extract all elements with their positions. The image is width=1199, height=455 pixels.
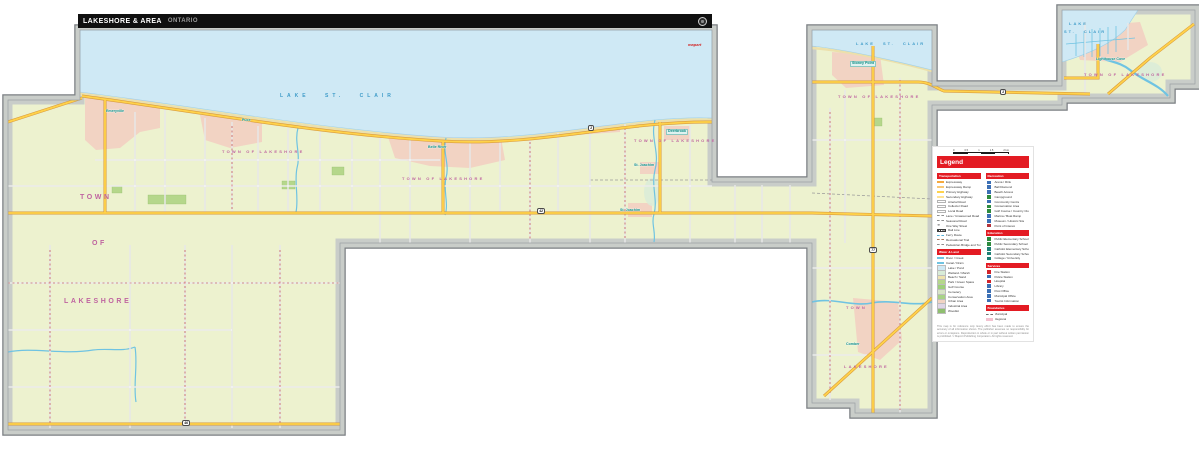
legend-swatch-sym <box>987 200 991 204</box>
legend-item-label: Lane / Unassumed Road <box>946 214 979 218</box>
legend-swatch-sym <box>987 237 991 241</box>
legend-swatch-sym <box>987 209 991 213</box>
legend-swatch-sym <box>987 275 991 279</box>
legend-item-label: Beach / Sand <box>948 275 966 279</box>
legend-item: College / University <box>986 256 1030 261</box>
legend-footnote: This map is for reference only. Every ef… <box>937 325 1029 338</box>
legend-item-label: One Way Street <box>946 224 967 228</box>
legend-item: Tourist Information <box>986 298 1030 303</box>
legend-item-label: Urban Area <box>948 299 963 303</box>
map-region: ONTARIO <box>168 18 198 24</box>
legend-item-label: Point of Interest <box>994 224 1015 228</box>
legend-item-label: Catholic Secondary School <box>994 252 1029 256</box>
legend-swatch-dash-brown <box>937 239 944 240</box>
legend-title: Legend <box>937 156 1029 168</box>
legend-item-label: Public Elementary School <box>994 237 1028 241</box>
legend-item-label: Community Centre <box>994 200 1019 204</box>
legend-item-label: Secondary Highway <box>946 195 973 199</box>
legend-item-label: Conservation Area <box>948 295 973 299</box>
legend-section-header: Boundaries <box>986 305 1030 311</box>
legend-swatch-line <box>937 196 944 198</box>
scale-tick: 0 <box>953 149 954 152</box>
legend-swatch-sym <box>987 284 991 288</box>
legend-item: Pedestrian Bridge and Tunnel <box>937 242 981 247</box>
legend-item-label: Tourist Information <box>994 299 1019 303</box>
legend-swatch-sym <box>987 190 991 194</box>
legend-item-label: Post Office <box>994 289 1009 293</box>
legend-section-header: Transportation <box>937 173 981 179</box>
legend-swatch-sym <box>987 205 991 209</box>
legend-swatch-sym <box>987 252 991 256</box>
legend-swatch-line-outline <box>937 200 946 203</box>
legend-item-label: Arena / Rink <box>994 180 1011 184</box>
legend-swatch-dash-gray <box>937 244 944 245</box>
legend-swatch-line <box>937 186 944 188</box>
legend-swatch-dash-blue <box>937 235 944 236</box>
legend-item-label: Industrial Area <box>948 304 967 308</box>
legend-item-label: Primary Highway <box>946 190 969 194</box>
legend-item-label: Regional <box>995 317 1007 321</box>
scale-tick: 1.5 <box>990 149 994 152</box>
legend-item-label: Ball Diamond <box>994 185 1012 189</box>
legend-swatch-line-outline <box>937 205 946 208</box>
scale-tick: 0.5 <box>965 149 969 152</box>
legend-swatch-arrow: ➜ <box>937 224 944 227</box>
legend-section-header: Water & Land <box>937 249 981 255</box>
scale-bar-segments <box>953 152 1009 154</box>
legend-swatch-sym <box>987 299 991 303</box>
legend-item-label: College / University <box>994 256 1020 260</box>
legend-item-label: Park / Green Space <box>948 280 974 284</box>
scale-tick: 2 km <box>1003 149 1009 152</box>
legend-swatch-sym <box>987 224 991 228</box>
legend-item-label: Conservation Area <box>994 204 1019 208</box>
legend-item-label: Municipal <box>995 312 1008 316</box>
legend-item-label: Wetland / Marsh <box>948 271 970 275</box>
legend-item: Regional <box>986 317 1030 322</box>
title-bar: LAKESHORE & AREA ONTARIO <box>78 14 712 28</box>
legend-item-label: Canal / Drain <box>946 261 964 265</box>
legend-item-label: Cemetery <box>948 290 961 294</box>
legend-item-label: Rail Line <box>948 228 960 232</box>
legend-swatch-sym <box>987 219 991 223</box>
legend-section-header: Services <box>986 263 1030 269</box>
legend-panel: 00.511.52 km Legend TransportationExpres… <box>932 146 1034 342</box>
legend-item-label: Municipal Office <box>994 294 1015 298</box>
legend-swatch-sym <box>987 247 991 251</box>
legend-item-label: Seasonal Road <box>946 219 967 223</box>
legend-item-label: Recreational Trail <box>946 238 969 242</box>
legend-item-label: Golf Course <box>948 285 964 289</box>
legend-swatch-sym <box>987 294 991 298</box>
legend-swatch-line <box>937 191 944 193</box>
legend-swatch-line-outline <box>937 210 946 213</box>
legend-swatch-line <box>937 262 944 264</box>
legend-item-label: Marina / Boat Ramp <box>994 214 1021 218</box>
legend-item-label: Local Road <box>948 209 963 213</box>
legend-item-label: Pedestrian Bridge and Tunnel <box>946 243 981 247</box>
legend-item-label: Campground <box>994 195 1011 199</box>
legend-item-label: Expressway <box>946 180 962 184</box>
legend-swatch-rail <box>937 229 946 233</box>
legend-item-label: Ferry Route <box>946 233 962 237</box>
legend-item-label: Fire Station <box>994 270 1009 274</box>
legend-item-label: Library <box>994 284 1003 288</box>
legend-item-label: Arterial Road <box>948 200 966 204</box>
legend-swatch-fill <box>937 308 946 314</box>
legend-item-label: Expressway Ramp <box>946 185 971 189</box>
legend-item-label: Police Station <box>994 275 1012 279</box>
legend-item-label: Public Secondary School <box>994 242 1027 246</box>
legend-item-label: Lake / Pond <box>948 266 964 270</box>
legend-swatch-sym <box>987 181 991 185</box>
legend-item-label: Beach Access <box>994 190 1013 194</box>
legend-swatch-sym <box>987 280 991 284</box>
legend-item-label: River / Creek <box>946 256 964 260</box>
legend-item-label: Collector Road <box>948 204 968 208</box>
legend-item-label: Museum / Historic Site <box>994 219 1024 223</box>
legend-swatch-sym <box>987 289 991 293</box>
legend-swatch-line <box>937 257 944 259</box>
legend-item-label: Hospital <box>994 279 1005 283</box>
legend-swatch-dash-gray <box>937 215 944 216</box>
legend-swatch-sym <box>987 270 991 274</box>
scale-bar: 00.511.52 km <box>953 149 1029 154</box>
map-title: LAKESHORE & AREA <box>83 18 162 25</box>
legend-section-header: Recreation <box>986 173 1030 179</box>
legend-section-header: Education <box>986 230 1030 236</box>
legend-swatch-sym <box>987 195 991 199</box>
legend-swatch-sym <box>987 214 991 218</box>
legend-swatch-sym <box>987 257 991 261</box>
scale-tick: 1 <box>978 149 979 152</box>
legend-column-left: TransportationExpresswayExpressway RampP… <box>937 171 981 321</box>
globe-icon <box>698 17 707 26</box>
legend-swatch-bound-pink <box>986 318 993 321</box>
legend-item-label: Golf Course / Country Club <box>994 209 1029 213</box>
legend-swatch-bound-gray <box>986 314 993 315</box>
legend-swatch-sym <box>987 242 991 246</box>
legend-swatch-dash-gray <box>937 220 944 221</box>
legend-swatch-line <box>937 181 944 183</box>
legend-item: Point of Interest <box>986 223 1030 228</box>
legend-column-right: RecreationArena / RinkBall DiamondBeach … <box>986 171 1030 321</box>
legend-swatch-sym <box>987 185 991 189</box>
legend-item-label: Catholic Elementary School <box>994 247 1029 251</box>
legend-item-label: Woodlot <box>948 309 959 313</box>
legend-item: Woodlot <box>937 309 981 314</box>
